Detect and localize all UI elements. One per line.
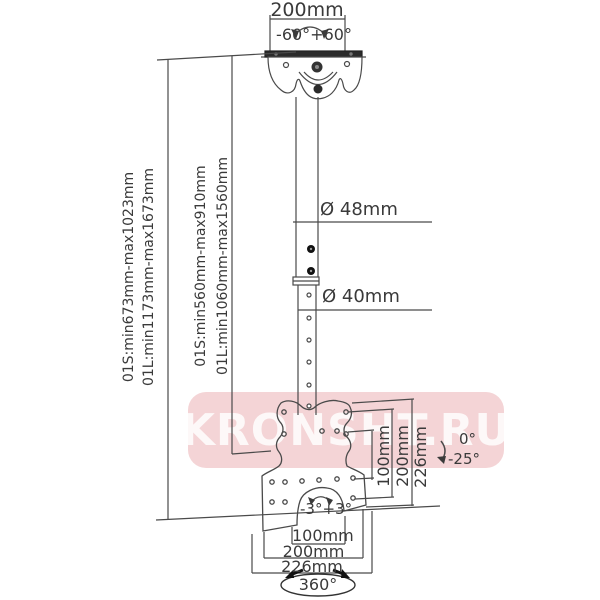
- tilt-up-label: 0°: [459, 432, 476, 447]
- telescoping-pole: [293, 97, 432, 415]
- overall-length-01l-label: 01L:min1173mm-max1673mm: [142, 168, 156, 386]
- vesa-vertical-100-label: 100mm: [376, 425, 392, 487]
- overall-length-01s-label: 01S:min673mm-max1023mm: [122, 172, 136, 382]
- upper-pole-diameter-label: Ø 48mm: [320, 201, 398, 219]
- top-width-label: 200mm: [268, 1, 346, 20]
- tilt-arc-arrow-icon: [437, 441, 446, 464]
- rotation-360-label: 360°: [281, 577, 355, 593]
- ceiling-plate: [261, 51, 366, 99]
- vesa-vertical-226-label: 226mm: [413, 426, 429, 488]
- ceiling-tv-mount-diagram: KRONSHT.RU: [0, 0, 600, 600]
- tilt-down-label: -25°: [448, 452, 480, 467]
- pole-length-01l-label: 01L:min1060mm-max1560mm: [216, 157, 230, 375]
- bottom-width-226-label: 226mm: [252, 559, 372, 575]
- lower-pole-diameter-label: Ø 40mm: [322, 288, 400, 306]
- vesa-vertical-200-label: 200mm: [395, 425, 411, 487]
- swivel-range-label: -60°+60°: [276, 27, 352, 43]
- pole-length-01s-label: 01S:min560mm-max910mm: [194, 165, 208, 366]
- plate-swivel-label: -3°+3°: [300, 502, 348, 517]
